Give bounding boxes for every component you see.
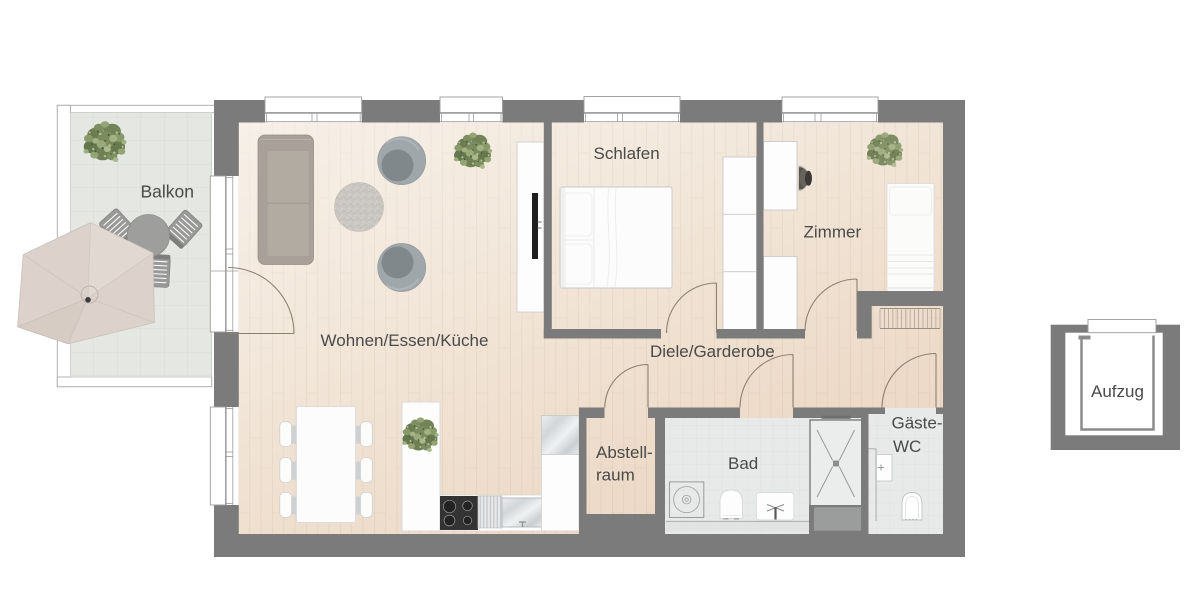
svg-text:Abstell-: Abstell- — [596, 443, 653, 462]
svg-text:Zimmer: Zimmer — [804, 223, 862, 242]
svg-text:Diele/Garderobe: Diele/Garderobe — [650, 342, 775, 361]
svg-text:Bad: Bad — [728, 454, 758, 473]
svg-text:WC: WC — [893, 437, 921, 456]
svg-text:Wohnen/Essen/Küche: Wohnen/Essen/Küche — [321, 331, 489, 350]
svg-text:Balkon: Balkon — [141, 182, 195, 202]
svg-text:raum: raum — [596, 466, 635, 485]
svg-text:Gäste-: Gäste- — [892, 414, 943, 433]
svg-text:Schlafen: Schlafen — [594, 144, 660, 163]
svg-text:Aufzug: Aufzug — [1091, 382, 1144, 401]
